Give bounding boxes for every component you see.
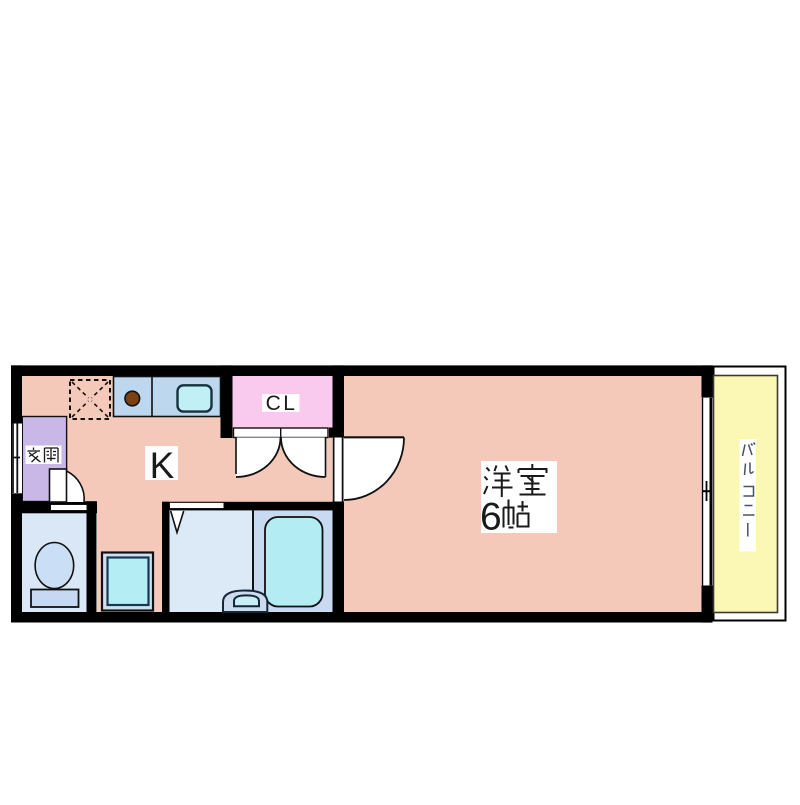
svg-text:6: 6 <box>480 496 502 539</box>
svg-text:CL: CL <box>266 392 298 415</box>
svg-text:K: K <box>150 445 175 486</box>
